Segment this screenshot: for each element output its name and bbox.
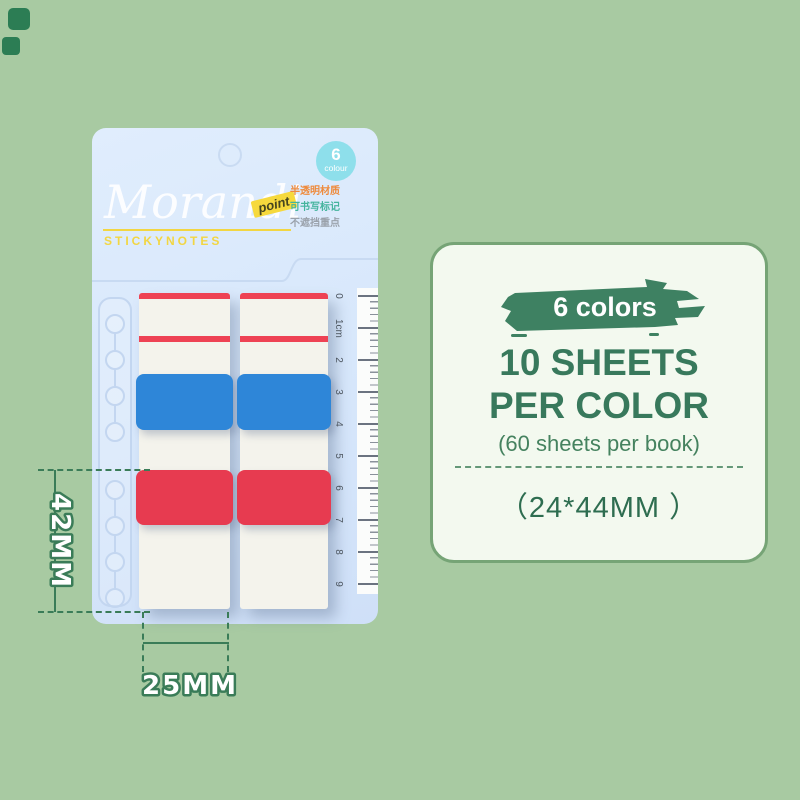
svg-text:25MM: 25MM (142, 671, 238, 701)
tab-stack (240, 293, 328, 609)
ruler-number: 3 (332, 383, 344, 401)
dashed-divider (455, 466, 743, 468)
red-index-tab (237, 470, 331, 525)
brand-subtitle: STICKYNOTES (104, 234, 222, 248)
tab-stack (139, 293, 230, 609)
blue-index-tab (136, 374, 233, 430)
badge-label: colour (316, 164, 356, 173)
headline-line2: PER COLOR (433, 386, 765, 426)
width-dimension-line (143, 642, 229, 644)
info-panel: 6 colors 10 SHEETS PER COLOR (60 sheets … (430, 242, 768, 563)
perforation-pattern (96, 294, 136, 610)
ruler (357, 288, 378, 594)
ruler-number: 7 (332, 511, 344, 529)
red-index-tab (136, 470, 233, 525)
feature-list: 半透明材质 可书写标记 不遮挡重点 (290, 187, 378, 235)
ruler-number: 9 (332, 575, 344, 593)
ruler-cm-tick (358, 519, 378, 521)
ruler-cm-tick (358, 455, 378, 457)
package-card: 6 colour Morandi point STICKYNOTES 半透明材质… (92, 128, 378, 624)
feature-item: 不遮挡重点 (290, 219, 378, 229)
svg-text:42MM: 42MM (45, 493, 75, 589)
ruler-cm-tick (358, 551, 378, 553)
ruler-cm-tick (358, 423, 378, 425)
headline-line1: 10 SHEETS (433, 343, 765, 383)
ruler-mm-ticks (370, 296, 378, 586)
red-stripe (240, 336, 328, 342)
ruler-cm-tick (358, 487, 378, 489)
product-image: 6 colour Morandi point STICKYNOTES 半透明材质… (0, 0, 800, 800)
ruler-number: 5 (332, 447, 344, 465)
ruler-number: 6 (332, 479, 344, 497)
ruler-number: 8 (332, 543, 344, 561)
sheets-subline: (60 sheets per book) (433, 431, 765, 457)
ruler-cm-tick (358, 391, 378, 393)
brand-underline (103, 229, 291, 231)
ruler-cm-tick (358, 327, 378, 329)
color-count-label: 6 colors (499, 292, 711, 323)
blue-index-tab (237, 374, 331, 430)
ruler-number: 1cm (332, 319, 344, 337)
ruler-number: 0 (332, 287, 344, 305)
decor-square (8, 8, 30, 30)
decor-square (2, 37, 20, 55)
red-stripe (139, 336, 230, 342)
ruler-cm-tick (358, 583, 378, 585)
ruler-number: 2 (332, 351, 344, 369)
red-stripe (240, 293, 328, 299)
feature-item: 半透明材质 (290, 187, 378, 197)
ruler-number: 4 (332, 415, 344, 433)
height-dimension-label: 42MM (28, 472, 92, 610)
red-stripe (139, 293, 230, 299)
hang-hole (218, 143, 242, 167)
ruler-cm-tick (358, 359, 378, 361)
ruler-cm-tick (358, 295, 378, 297)
color-count-badge: 6 colour (316, 141, 356, 181)
badge-number: 6 (316, 146, 356, 164)
width-dimension-label: 25MM (128, 664, 252, 708)
size-label: （24*44MM ） (433, 484, 765, 526)
feature-item: 可书写标记 (290, 203, 378, 213)
